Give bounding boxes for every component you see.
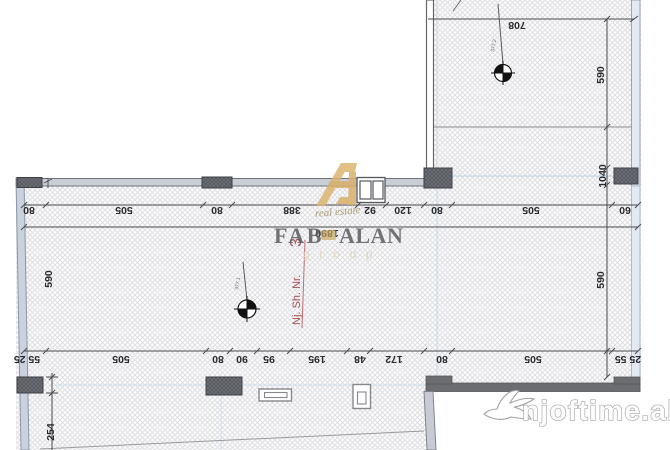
- svg-text:505: 505: [524, 353, 542, 365]
- svg-text:80: 80: [211, 204, 223, 216]
- svg-text:25 55: 25 55: [615, 353, 641, 365]
- svg-text:120: 120: [394, 204, 412, 216]
- svg-text:90: 90: [236, 353, 248, 365]
- svg-text:80: 80: [436, 353, 448, 365]
- svg-text:388: 388: [283, 204, 301, 216]
- svg-text:254: 254: [45, 423, 57, 441]
- svg-text:80: 80: [431, 204, 443, 216]
- svg-text:55 25: 55 25: [14, 353, 40, 365]
- svg-text:590: 590: [43, 270, 55, 288]
- svg-text:195: 195: [308, 353, 326, 365]
- svg-text:FAB: FAB: [274, 223, 324, 248]
- svg-text:505: 505: [115, 204, 133, 216]
- svg-text:80: 80: [23, 204, 35, 216]
- svg-text:590: 590: [595, 66, 607, 84]
- svg-text:92: 92: [364, 204, 376, 216]
- svg-text:708: 708: [508, 19, 526, 31]
- svg-text:njoftime.al: njoftime.al: [522, 395, 670, 426]
- svg-text:60: 60: [619, 204, 631, 216]
- svg-text:172: 172: [385, 353, 403, 365]
- svg-text:95: 95: [263, 353, 275, 365]
- svg-text:48: 48: [354, 353, 366, 365]
- svg-text:590: 590: [595, 271, 607, 289]
- svg-text:group: group: [303, 247, 382, 261]
- svg-text:505: 505: [522, 204, 540, 216]
- svg-text:Nj. Sh. Nr.: Nj. Sh. Nr.: [291, 275, 303, 325]
- svg-text:80: 80: [212, 353, 224, 365]
- svg-text:ALAN: ALAN: [339, 223, 403, 248]
- svg-text:505: 505: [112, 353, 130, 365]
